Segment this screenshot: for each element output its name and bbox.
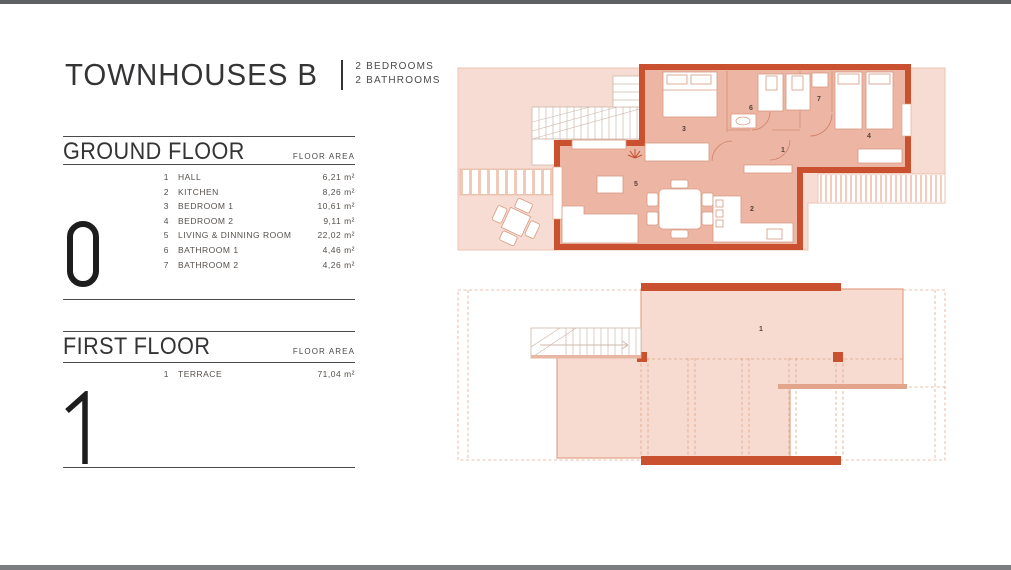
ground-floor-heading: GROUND FLOOR	[63, 140, 245, 164]
room-name: TERRACE	[169, 369, 317, 379]
level-numeral-0	[66, 221, 100, 287]
first-floor-header: FIRST FLOOR FLOOR AREA	[63, 334, 355, 359]
label-bedroom1: 3	[682, 126, 686, 133]
first-floor-heading: FIRST FLOOR	[63, 335, 210, 359]
room-number: 1	[63, 172, 169, 182]
first-floor-area-label: FLOOR AREA	[293, 347, 355, 359]
room-row: 3 BEDROOM 1 10,61 m²	[63, 201, 355, 216]
room-row: 1 TERRACE 71,04 m²	[63, 369, 355, 384]
label-bathroom2: 7	[817, 96, 821, 103]
room-area: 71,04 m²	[317, 369, 355, 379]
ground-floor-header: GROUND FLOOR FLOOR AREA	[63, 139, 355, 164]
toilet-2	[792, 76, 803, 90]
level-numeral-1	[62, 391, 98, 467]
subtitle-bathrooms: 2 BATHROOMS	[355, 74, 440, 88]
rule-first-bottom	[63, 362, 355, 363]
room-area: 8,26 m²	[323, 187, 355, 197]
label-living: 5	[634, 181, 638, 188]
toilet-1	[766, 76, 777, 90]
room-name: BEDROOM 2	[169, 216, 323, 226]
room-area: 22,02 m²	[317, 230, 355, 240]
room-row: 6 BATHROOM 1 4,46 m²	[63, 245, 355, 260]
first-floor-plan: 1	[452, 276, 952, 472]
ground-floor-area-label: FLOOR AREA	[293, 152, 355, 164]
room-name: KITCHEN	[169, 187, 323, 197]
kitchen-sink	[767, 229, 782, 239]
label-bedroom2: 4	[867, 133, 871, 140]
room-name: BATHROOM 2	[169, 260, 323, 270]
room-area: 4,46 m²	[323, 245, 355, 255]
subtitle-bedrooms: 2 BEDROOMS	[355, 60, 440, 74]
room-row: 2 KITCHEN 8,26 m²	[63, 187, 355, 202]
sink-2	[812, 73, 828, 87]
tv-console	[572, 140, 626, 149]
rule-first-top	[63, 331, 355, 332]
window-right	[902, 104, 911, 136]
rule-after-one	[63, 467, 355, 468]
room-name: BEDROOM 1	[169, 201, 317, 211]
label-hall: 1	[781, 147, 785, 154]
page-title-block: TOWNHOUSES B 2 BEDROOMS 2 BATHROOMS	[65, 58, 441, 92]
room-row: 7 BATHROOM 2 4,26 m²	[63, 260, 355, 275]
room-name: BATHROOM 1	[169, 245, 323, 255]
dining-table	[659, 189, 701, 229]
top-border-bar	[0, 0, 1011, 4]
room-row: 4 BEDROOM 2 9,11 m²	[63, 216, 355, 231]
room-area: 9,11 m²	[323, 216, 355, 226]
kitchen-upper-units	[744, 165, 792, 173]
stair-edge	[531, 355, 641, 359]
staircase-first-floor	[531, 328, 641, 359]
room-row: 1 HALL 6,21 m²	[63, 172, 355, 187]
page-title: TOWNHOUSES B	[65, 58, 318, 92]
room-number: 2	[63, 187, 169, 197]
room-area: 4,26 m²	[323, 260, 355, 270]
room-name: HALL	[169, 172, 323, 182]
bottom-border-bar	[0, 565, 1011, 570]
sideboard	[645, 143, 709, 161]
title-separator	[341, 60, 343, 90]
room-area: 6,21 m²	[323, 172, 355, 182]
room-name: LIVING & DINNING ROOM	[169, 230, 317, 240]
deck-hatched	[818, 174, 945, 203]
label-terrace: 1	[759, 326, 763, 333]
room-number: 3	[63, 201, 169, 211]
walkway-decking	[460, 169, 557, 195]
terrace-ledge	[778, 384, 907, 389]
ground-floor-room-list: 1 HALL 6,21 m² 2 KITCHEN 8,26 m² 3 BEDRO…	[63, 172, 355, 274]
coffee-table	[597, 176, 623, 193]
label-bathroom1: 6	[749, 105, 753, 112]
rule-ground-top	[63, 136, 355, 137]
ground-floor-plan: 3 6 7 1 4 5 2	[452, 57, 952, 255]
closet	[613, 76, 643, 107]
rule-ground-bottom	[63, 164, 355, 165]
label-kitchen: 2	[750, 206, 754, 213]
first-floor-room-list: 1 TERRACE 71,04 m²	[63, 369, 355, 384]
brochure-page: TOWNHOUSES B 2 BEDROOMS 2 BATHROOMS GROU…	[0, 0, 1011, 570]
room-number: 1	[63, 369, 169, 379]
title-subtitle: 2 BEDROOMS 2 BATHROOMS	[355, 58, 440, 88]
terrace-floor	[557, 289, 903, 458]
dresser	[858, 149, 902, 163]
window-left	[553, 167, 562, 219]
sink-1	[731, 114, 756, 128]
room-row: 5 LIVING & DINNING ROOM 22,02 m²	[63, 230, 355, 245]
rule-after-zero	[63, 299, 355, 300]
room-area: 10,61 m²	[317, 201, 355, 211]
